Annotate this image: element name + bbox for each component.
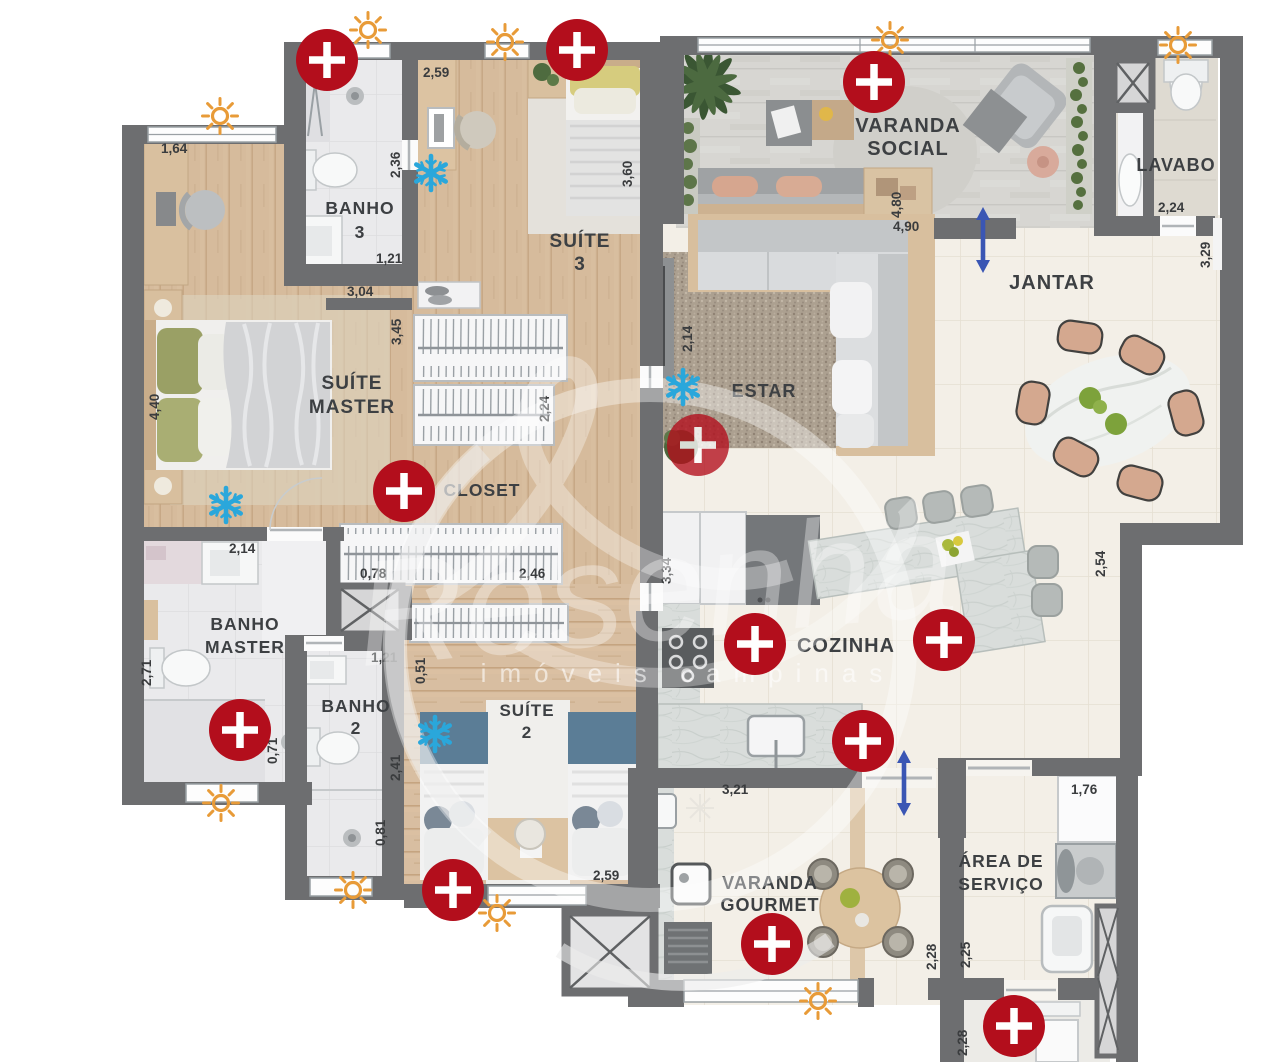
svg-text:2,28: 2,28 [924,943,939,970]
svg-text:2,14: 2,14 [229,541,256,556]
svg-text:LAVABO: LAVABO [1136,155,1215,175]
svg-text:MASTER: MASTER [205,637,285,657]
svg-text:BANHO: BANHO [210,614,279,634]
svg-text:SUÍTE: SUÍTE [550,230,611,252]
svg-text:2,24: 2,24 [1158,200,1185,215]
svg-text:1,21: 1,21 [376,251,403,266]
svg-text:2,28: 2,28 [955,1029,970,1056]
svg-text:2,14: 2,14 [680,325,695,352]
svg-text:2,59: 2,59 [593,868,619,883]
svg-text:2,36: 2,36 [388,151,403,178]
svg-text:SERVIÇO: SERVIÇO [958,874,1043,894]
svg-text:1,64: 1,64 [161,141,188,156]
svg-text:MASTER: MASTER [309,397,395,418]
svg-text:JANTAR: JANTAR [1009,272,1095,294]
svg-text:2: 2 [351,718,362,738]
svg-text:4,40: 4,40 [147,394,162,420]
svg-text:GOURMET: GOURMET [721,895,820,915]
svg-text:3: 3 [355,222,366,242]
svg-text:4,80: 4,80 [889,192,904,218]
svg-text:VARANDA: VARANDA [855,115,961,137]
svg-text:2,41: 2,41 [388,754,403,781]
svg-text:3,21: 3,21 [722,782,749,797]
svg-text:3,29: 3,29 [1198,242,1213,268]
svg-text:4,90: 4,90 [893,219,919,234]
svg-text:3,60: 3,60 [620,161,635,187]
svg-text:2: 2 [522,723,532,742]
svg-text:1,76: 1,76 [1071,782,1098,797]
svg-text:imóveis campinas: imóveis campinas [481,658,896,688]
svg-text:0,81: 0,81 [373,819,388,846]
svg-text:SOCIAL: SOCIAL [867,138,949,160]
svg-text:SUÍTE: SUÍTE [322,372,383,394]
svg-text:BANHO: BANHO [321,696,390,716]
svg-text:2,71: 2,71 [139,659,154,686]
svg-text:2,54: 2,54 [1093,550,1108,577]
svg-text:BANHO: BANHO [325,198,394,218]
svg-text:3: 3 [574,254,586,275]
svg-text:SUÍTE: SUÍTE [499,701,554,720]
svg-text:2,25: 2,25 [958,941,973,968]
svg-text:2,59: 2,59 [423,65,449,80]
svg-text:3,04: 3,04 [347,284,374,299]
svg-text:3,45: 3,45 [389,318,404,345]
svg-text:ÁREA DE: ÁREA DE [958,850,1043,871]
